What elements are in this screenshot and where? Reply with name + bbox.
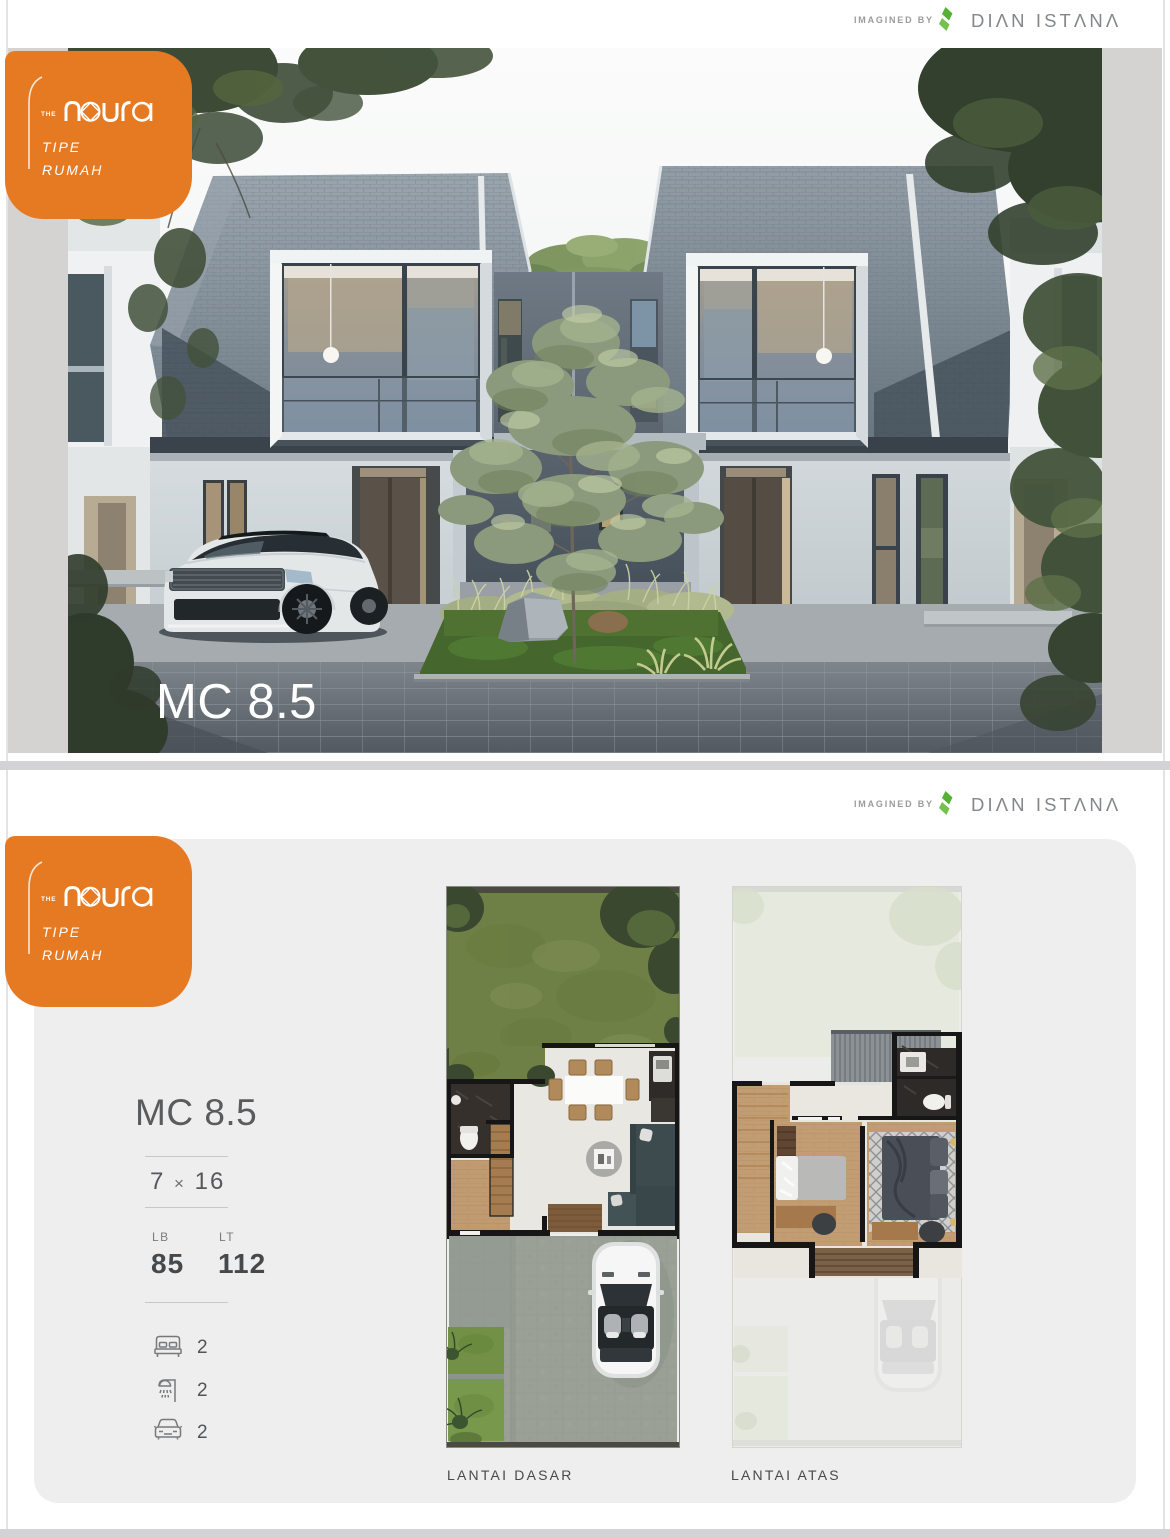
svg-text:THE: THE [41,111,56,118]
svg-text:THE: THE [41,896,56,903]
svg-text:MC 8.5: MC 8.5 [156,675,317,729]
